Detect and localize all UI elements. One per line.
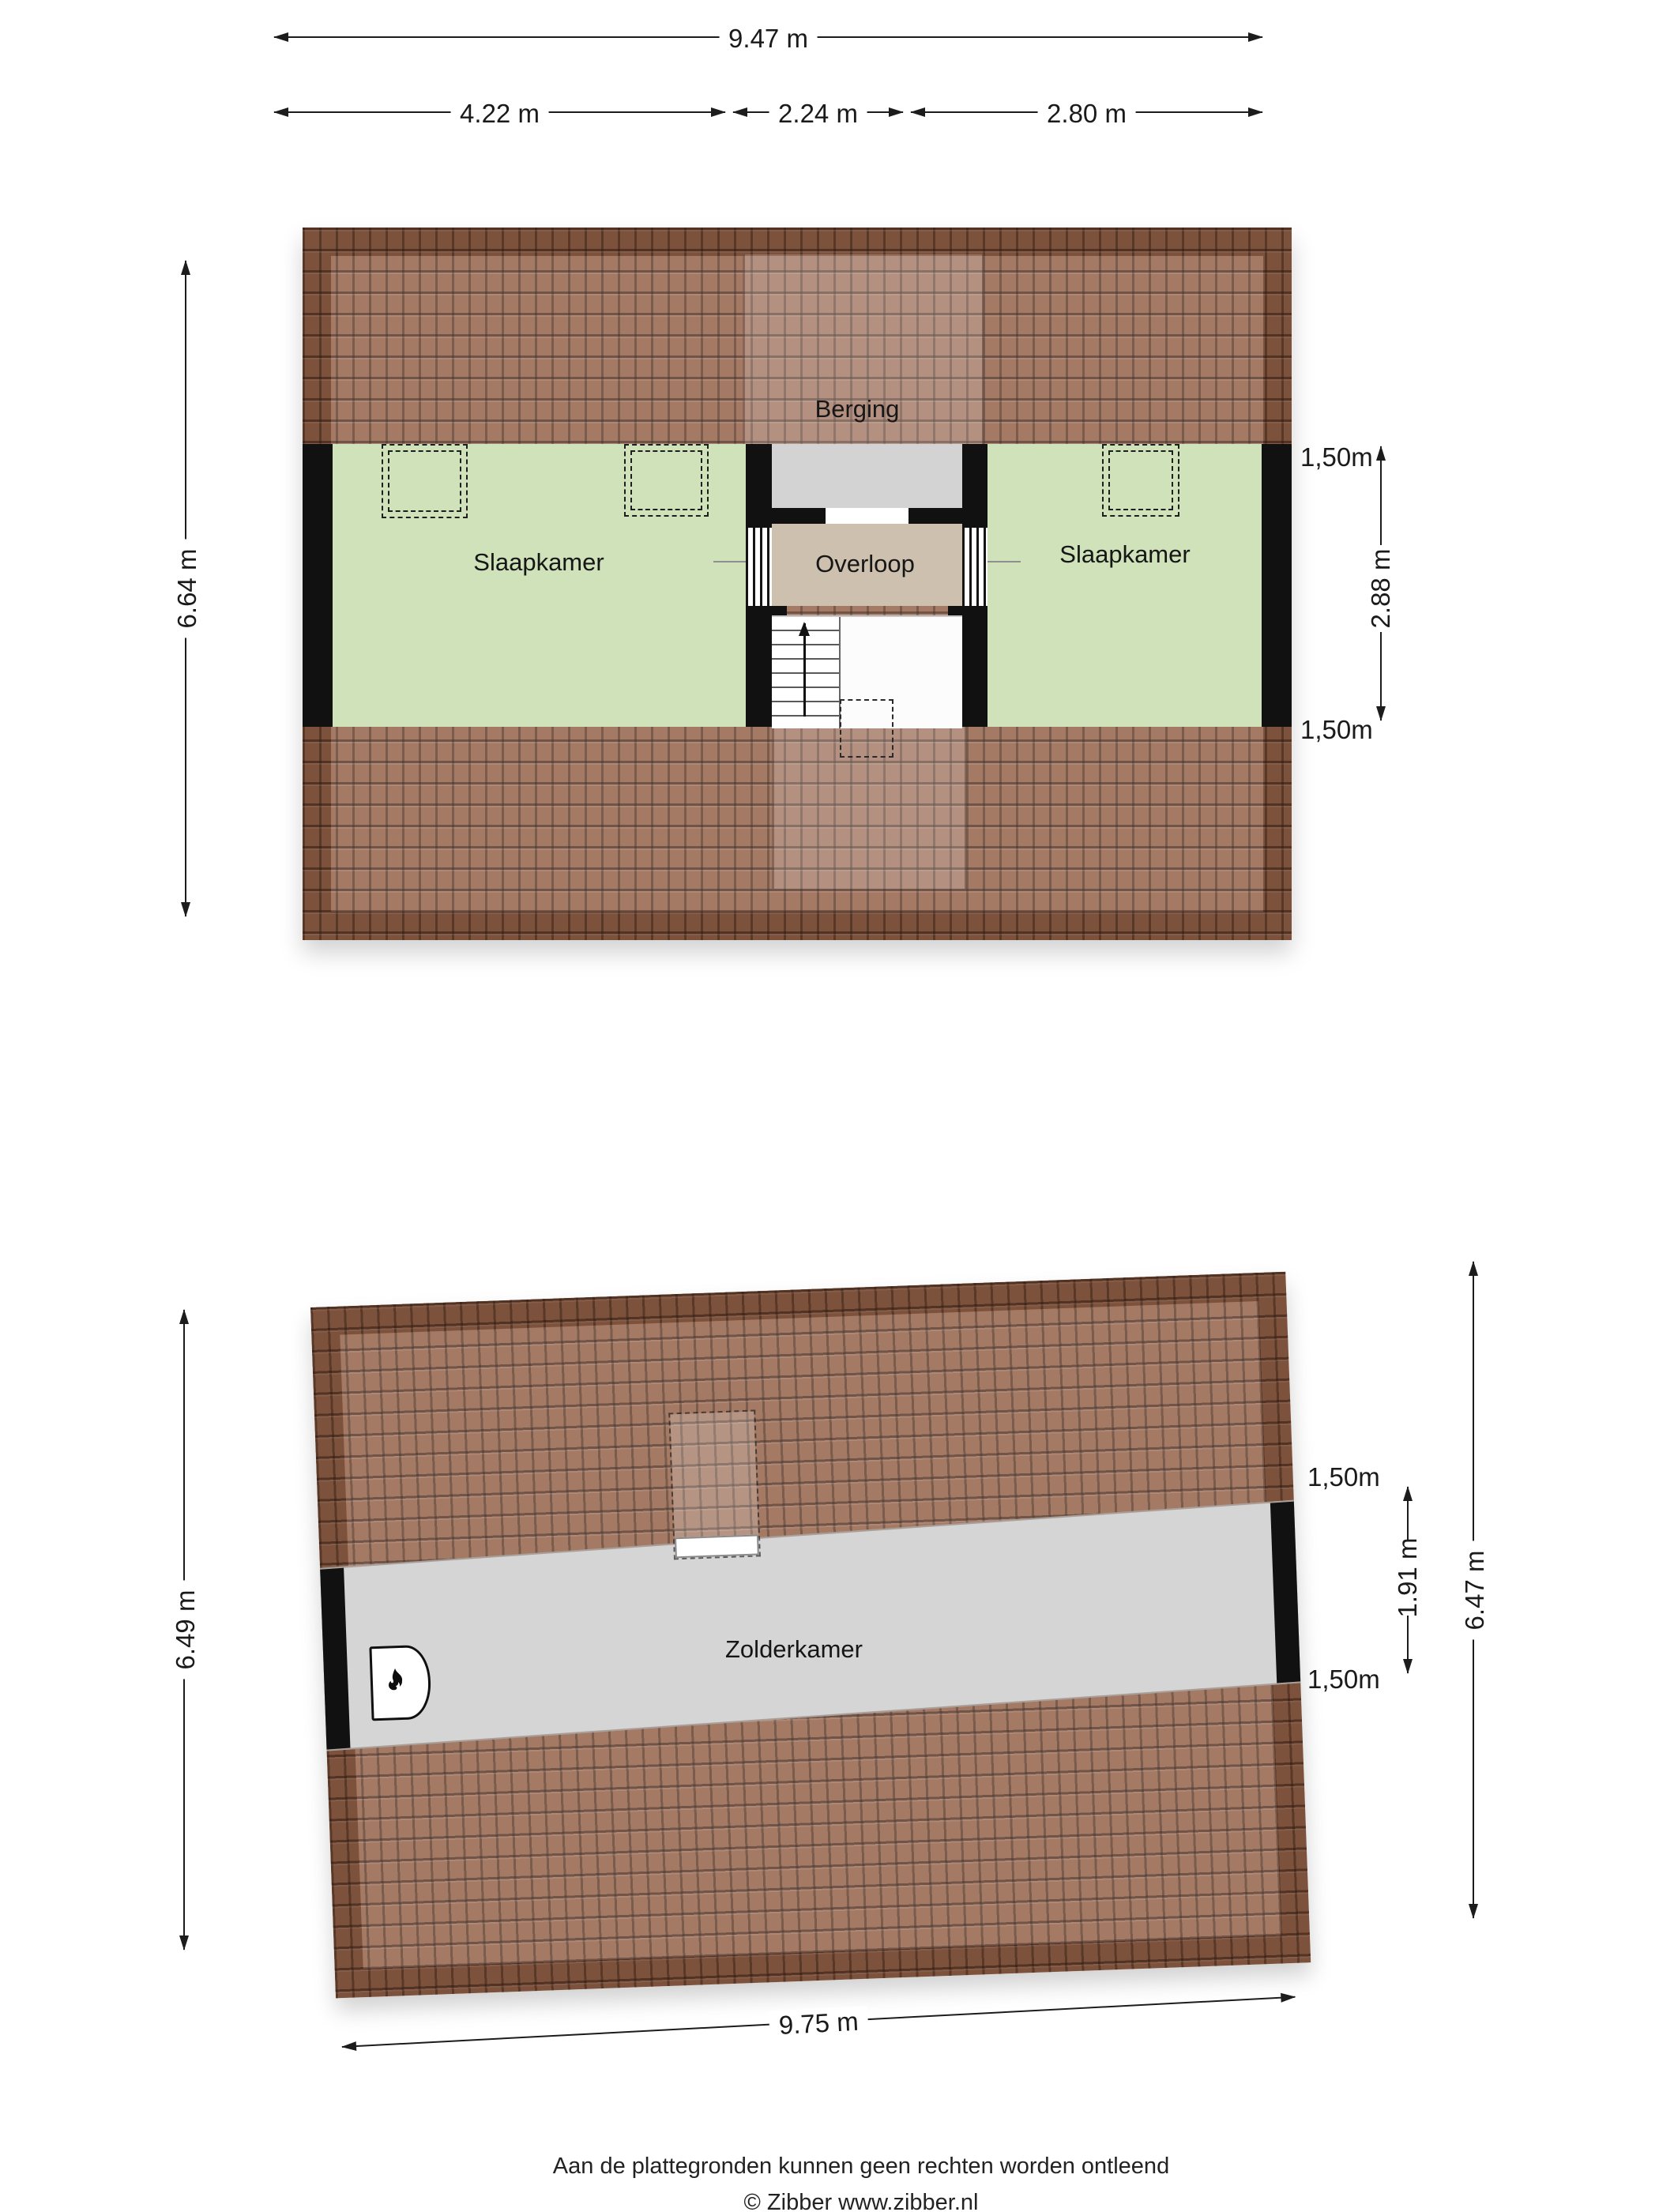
roof-window-2	[624, 444, 709, 517]
dim-knee-bottom-1: 1,50m	[1300, 715, 1373, 745]
roof-window-1	[382, 444, 468, 518]
floorplan-page: Berging Slaapkamer Overloop Slaapkamer 9…	[0, 0, 1659, 2212]
dormer-window-sill	[675, 1534, 759, 1558]
dim-height-left-2: 6.49 m	[183, 1310, 185, 1950]
dim-mid-arrow-down-2	[1407, 1616, 1409, 1673]
room-berging	[772, 444, 962, 508]
dim-seg3: 2.80 m	[911, 111, 1262, 113]
footer-disclaimer: Aan de plattegronden kunnen geen rechten…	[308, 2154, 1414, 2180]
dim-mid-arrow-up-2	[1407, 1487, 1409, 1540]
wall-attic-right	[1270, 1502, 1300, 1683]
dormer-roof-patch	[670, 1412, 758, 1538]
door-berging	[822, 508, 912, 524]
dim-total-width-top: 9.47 m	[274, 36, 1262, 38]
wall-under-berging	[772, 508, 962, 524]
label-slaapkamer-left: Slaapkamer	[436, 548, 641, 577]
dim-mid-height-2: 1.91 m	[1393, 1538, 1423, 1618]
stair-void	[840, 699, 893, 758]
floorplan-upper: Berging Slaapkamer Overloop Slaapkamer	[303, 228, 1292, 940]
wall-corridor-right	[962, 444, 987, 727]
door-swing-line-left	[713, 561, 746, 562]
door-swing-line-right	[987, 561, 1021, 562]
wall-left	[303, 444, 333, 727]
wall-right	[1262, 444, 1292, 727]
wall-attic-left	[320, 1568, 350, 1750]
label-berging: Berging	[754, 395, 960, 423]
dim-seg1: 4.22 m	[274, 111, 725, 113]
dim-seg2: 2.24 m	[733, 111, 903, 113]
dim-mid-arrow-up-1	[1380, 446, 1382, 545]
dim-height-left-1: 6.64 m	[185, 261, 186, 916]
dim-height-right-2: 6.47 m	[1473, 1262, 1474, 1918]
dim-total-width-bottom: 9.75 m	[342, 1996, 1295, 2048]
roof-window-3	[1102, 444, 1179, 517]
label-slaapkamer-right: Slaapkamer	[1022, 540, 1228, 569]
dim-mid-height-1: 2.88 m	[1366, 549, 1396, 629]
label-zolderkamer: Zolderkamer	[691, 1635, 897, 1664]
footer-credit: © Zibber www.zibber.nl	[308, 2190, 1414, 2212]
dim-knee-top-1: 1,50m	[1300, 442, 1373, 472]
wall-stub-right	[948, 606, 987, 615]
label-overloop: Overloop	[762, 550, 968, 578]
dim-knee-bottom-2: 1,50m	[1307, 1665, 1380, 1695]
wall-corridor-left	[746, 444, 772, 727]
dim-mid-arrow-down-1	[1380, 632, 1382, 720]
stairs-up-arrow-icon	[803, 623, 806, 717]
dim-knee-top-2: 1,50m	[1307, 1462, 1380, 1492]
dormer-window	[668, 1409, 761, 1559]
flame-glyph	[378, 1667, 410, 1699]
fireplace-icon	[369, 1645, 431, 1721]
wall-stub-left	[746, 606, 787, 615]
